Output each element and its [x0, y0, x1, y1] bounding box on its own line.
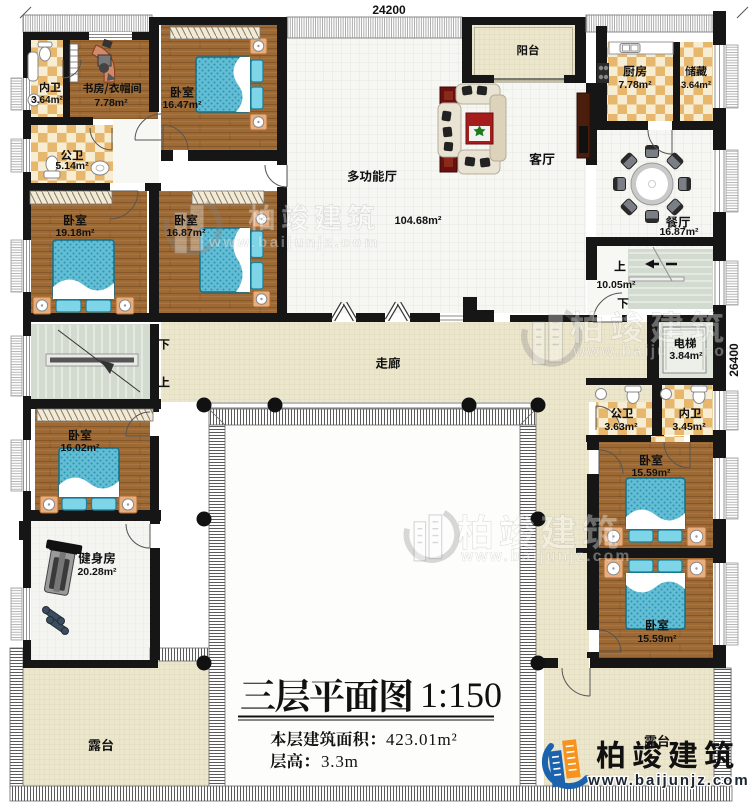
svg-text:3.64m²: 3.64m²: [31, 95, 63, 106]
svg-text:www.baijunjz.com: www.baijunjz.com: [587, 772, 749, 789]
svg-text:104.68m²: 104.68m²: [394, 215, 441, 227]
svg-text:1:150: 1:150: [420, 675, 502, 715]
svg-text:3.3m: 3.3m: [321, 752, 359, 771]
svg-text:10.05m²: 10.05m²: [596, 279, 636, 291]
svg-text:15.59m²: 15.59m²: [637, 633, 677, 645]
svg-text:20.28m²: 20.28m²: [77, 566, 117, 578]
svg-text:423.01m²: 423.01m²: [386, 730, 457, 749]
svg-text:5.14m²: 5.14m²: [55, 160, 89, 172]
svg-text:www.baijunjz.com: www.baijunjz.com: [460, 548, 632, 565]
svg-text:15.59m²: 15.59m²: [631, 467, 671, 479]
svg-text:3.84m²: 3.84m²: [669, 350, 703, 362]
svg-text:7.78m²: 7.78m²: [618, 79, 652, 91]
svg-text:16.47m²: 16.47m²: [162, 99, 202, 111]
svg-text:19.18m²: 19.18m²: [55, 227, 95, 239]
svg-text:www.baijunjz.com: www.baijunjz.com: [208, 234, 380, 251]
svg-text:7.78m²: 7.78m²: [94, 97, 128, 109]
svg-text:16.02m²: 16.02m²: [60, 442, 100, 454]
svg-text:26400: 26400: [727, 343, 741, 377]
svg-text:3.63m²: 3.63m²: [604, 421, 638, 433]
svg-text:16.87m²: 16.87m²: [659, 226, 699, 238]
svg-text:24200: 24200: [372, 3, 406, 17]
svg-text:3.64m²: 3.64m²: [681, 80, 711, 91]
svg-text:www.baijunjz.com: www.baijunjz.com: [572, 343, 742, 360]
svg-text:16.87m²: 16.87m²: [166, 227, 206, 239]
svg-text:3.45m²: 3.45m²: [672, 421, 706, 433]
